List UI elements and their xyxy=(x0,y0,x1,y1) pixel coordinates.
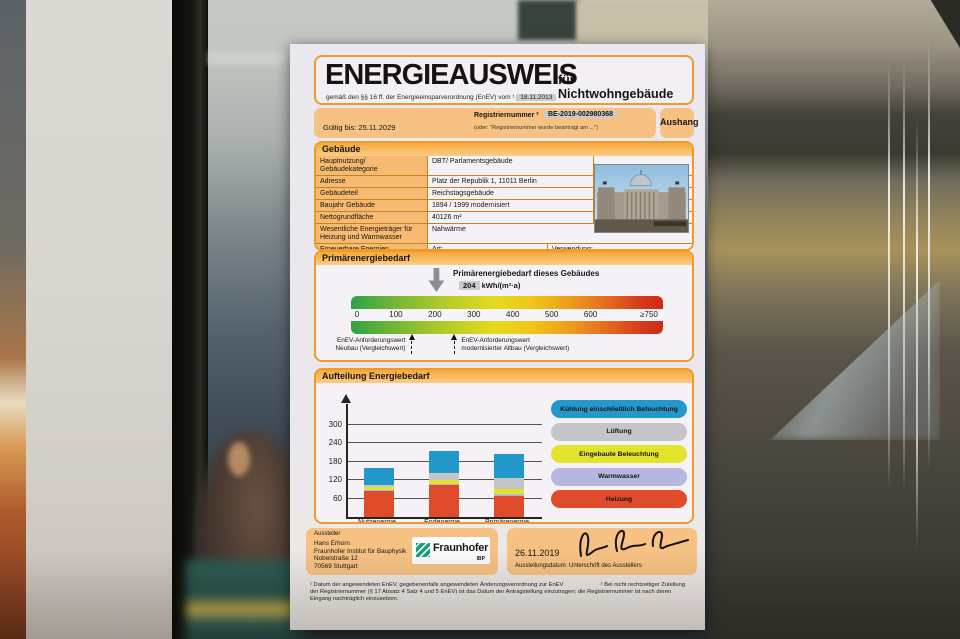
enev-marker-label: EnEV-AnforderungswertNeubau (Vergleichsw… xyxy=(314,337,406,352)
energy-chart-section: Aufteilung Energiebedarf 60120180240300N… xyxy=(314,368,694,524)
glass-reflection-left xyxy=(0,0,26,639)
legend-pill-warmwasser: Warmwasser xyxy=(551,468,687,486)
fraunhofer-ibp-label: IBP xyxy=(477,556,485,562)
marker-dashed-line xyxy=(454,341,455,354)
building-row-label: Baujahr Gebäude xyxy=(316,200,428,211)
person-ear-reflection xyxy=(228,442,250,476)
bar-segment-heizung xyxy=(429,485,459,517)
issuer-address: Hans Erhorn Fraunhofer Institut für Baup… xyxy=(314,540,406,570)
energy-value-pointer-arrow xyxy=(428,268,444,292)
display-type-badge: Aushang xyxy=(660,108,694,138)
fraunhofer-logo-text: Fraunhofer xyxy=(433,542,488,554)
certificate-title: ENERGIEAUSWEIS xyxy=(325,59,577,92)
enev-marker-label: EnEV-Anforderungswertmodernisierter Altb… xyxy=(461,337,569,352)
building-section: Gebäude Hauptnutzung/ GebäudekategorieDB… xyxy=(314,141,694,251)
scale-tick-label: 0 xyxy=(355,310,359,319)
x-axis-label: Primärenergie xyxy=(467,519,547,524)
registry-band: Gültig bis: 25.11.2029 Registriernummer … xyxy=(314,108,656,138)
scale-tick-label: 400 xyxy=(506,310,519,319)
bar-segment-lüftung xyxy=(494,478,524,488)
photo-of-energy-certificate: ENERGIEAUSWEIS für Nichtwohngebäude gemä… xyxy=(0,0,960,639)
title-box: ENERGIEAUSWEIS für Nichtwohngebäude gemä… xyxy=(314,55,694,105)
stacked-bar-endenergie xyxy=(429,451,459,517)
building-row-value: 1894 / 1999 modernisiert xyxy=(428,200,594,211)
marker-triangle-icon xyxy=(409,334,415,340)
chart-legend: Kühlung einschließlich BefeuchtungLüftun… xyxy=(551,400,687,508)
legend-pill-eingebaute-beleuchtung: Eingebaute Beleuchtung xyxy=(551,445,687,463)
legend-pill-heizung: Heizung xyxy=(551,490,687,508)
reichstag-photo xyxy=(594,164,689,233)
enev-marker-arrow xyxy=(409,334,415,354)
scale-tick-label: 300 xyxy=(467,310,480,319)
issuer-institute: Fraunhofer Institut für Bauphysik xyxy=(314,548,406,556)
certificate-subtitle: gemäß den §§ 16 ff. der Energieeinsparve… xyxy=(326,94,556,101)
stacked-bar-primärenergie xyxy=(494,454,524,517)
bar-segment-kühlung-einschließlich-befeuchtung xyxy=(494,454,524,478)
y-axis-tick-label: 60 xyxy=(322,494,342,503)
subtitle-text: gemäß den §§ 16 ff. der Energieeinsparve… xyxy=(326,94,514,101)
y-axis-arrow-icon xyxy=(341,394,351,403)
y-axis-tick-label: 300 xyxy=(322,420,342,429)
fraunhofer-logo: Fraunhofer IBP xyxy=(412,537,490,564)
building-row-value: 40126 m² xyxy=(428,212,594,223)
signature xyxy=(569,520,693,566)
bar-segment-kühlung-einschließlich-befeuchtung xyxy=(429,451,459,473)
energy-value-unit: kWh/(m²·a) xyxy=(482,281,521,290)
background-panel-dark xyxy=(518,0,580,40)
enev-marker-arrow xyxy=(451,334,457,354)
signature-label: Unterschrift des Ausstellers xyxy=(569,563,642,569)
chart-gridline xyxy=(348,442,542,443)
building-row-label: Wesentliche Energieträger für Heizung un… xyxy=(316,224,428,243)
energy-certificate-paper: ENERGIEAUSWEIS für Nichtwohngebäude gemä… xyxy=(290,44,705,630)
background-wall xyxy=(576,0,716,46)
building-row-label: Adresse xyxy=(316,176,428,187)
issue-date-label: Ausstellungsdatum xyxy=(515,563,566,569)
building-row-label: Hauptnutzung/ Gebäudekategorie xyxy=(316,156,428,175)
building-row-label: Nettogrundfläche xyxy=(316,212,428,223)
issuer-name: Hans Erhorn xyxy=(314,540,406,548)
stacked-bar-nutzenergie xyxy=(364,468,394,517)
enev-date-chip: 18.11.2013 xyxy=(516,94,556,101)
y-axis-tick-label: 120 xyxy=(322,475,342,484)
issuer-label: Aussteller xyxy=(314,531,340,537)
bar-segment-heizung xyxy=(494,496,524,517)
legend-pill-kühlung-einschließlich-befeuchtung: Kühlung einschließlich Befeuchtung xyxy=(551,400,687,418)
footnotes: ¹ Datum der angewendeten EnEV, gegebenen… xyxy=(310,582,686,603)
bar-chart: 60120180240300NutzenergieEndenergiePrimä… xyxy=(322,386,548,524)
energy-value: 204 kWh/(m²·a) xyxy=(459,281,520,290)
building-row-value: Platz der Republik 1, 11011 Berlin xyxy=(428,176,594,187)
issue-date: 26.11.2019 xyxy=(515,548,559,558)
scale-tick-label: 500 xyxy=(545,310,558,319)
chart-plot-area xyxy=(346,404,542,519)
building-section-header: Gebäude xyxy=(316,143,692,156)
legend-pill-lüftung: Lüftung xyxy=(551,423,687,441)
scale-tick-label: ≥750 xyxy=(640,310,658,319)
certificate-title-suffix: für Nichtwohngebäude xyxy=(558,73,692,101)
footnote-1: ¹ Datum der angewendeten EnEV, gegebenen… xyxy=(310,582,563,588)
registry-label: Registriernummer ² xyxy=(474,112,539,119)
energy-scale: 0100200300400500600≥750 xyxy=(351,296,663,334)
issuer-block: Aussteller Hans Erhorn Fraunhofer Instit… xyxy=(306,528,498,575)
fraunhofer-logo-icon xyxy=(416,543,430,557)
y-axis-tick-label: 240 xyxy=(322,438,342,447)
registry-number: BE-2019-002980368 xyxy=(544,111,617,118)
primary-section-header: Primärenergiebedarf xyxy=(316,252,692,265)
bar-segment-kühlung-einschließlich-befeuchtung xyxy=(364,468,394,485)
chart-section-header: Aufteilung Energiebedarf xyxy=(316,370,692,383)
bar-segment-heizung xyxy=(364,491,394,517)
signature-block: 26.11.2019 Ausstellungsdatum Unterschrif… xyxy=(507,528,697,575)
issuer-city: 70569 Stuttgart xyxy=(314,563,406,571)
scale-gradient-top xyxy=(351,296,663,309)
person-shirt-reflection xyxy=(186,560,306,639)
building-row-label: Gebäudeteil xyxy=(316,188,428,199)
building-row-value: Reichstagsgebäude xyxy=(428,188,594,199)
issuer-street: Nobelstraße 12 xyxy=(314,555,406,563)
scale-tick-label: 600 xyxy=(584,310,597,319)
scale-tick-label: 100 xyxy=(389,310,402,319)
scale-tick-label: 200 xyxy=(428,310,441,319)
marker-triangle-icon xyxy=(451,334,457,340)
chart-gridline xyxy=(348,424,542,425)
display-type-label: Aushang xyxy=(660,117,694,127)
marker-dashed-line xyxy=(411,341,412,354)
valid-until: Gültig bis: 25.11.2029 xyxy=(323,123,395,132)
scale-gradient-bottom xyxy=(351,321,663,334)
scale-tick-row: 0100200300400500600≥750 xyxy=(351,309,663,321)
wall-pillar xyxy=(26,0,172,639)
y-axis-tick-label: 180 xyxy=(322,457,342,466)
pointer-title: Primärenergiebedarf dieses Gebäudes xyxy=(453,269,599,278)
building-row-value: DBT/ Parlamentsgebäude xyxy=(428,156,594,175)
registry-note: (oder: "Registriernummer wurde beantragt… xyxy=(474,125,598,131)
energy-value-number: 204 xyxy=(459,281,480,290)
primary-energy-section: Primärenergiebedarf Primärenergiebedarf … xyxy=(314,250,694,362)
